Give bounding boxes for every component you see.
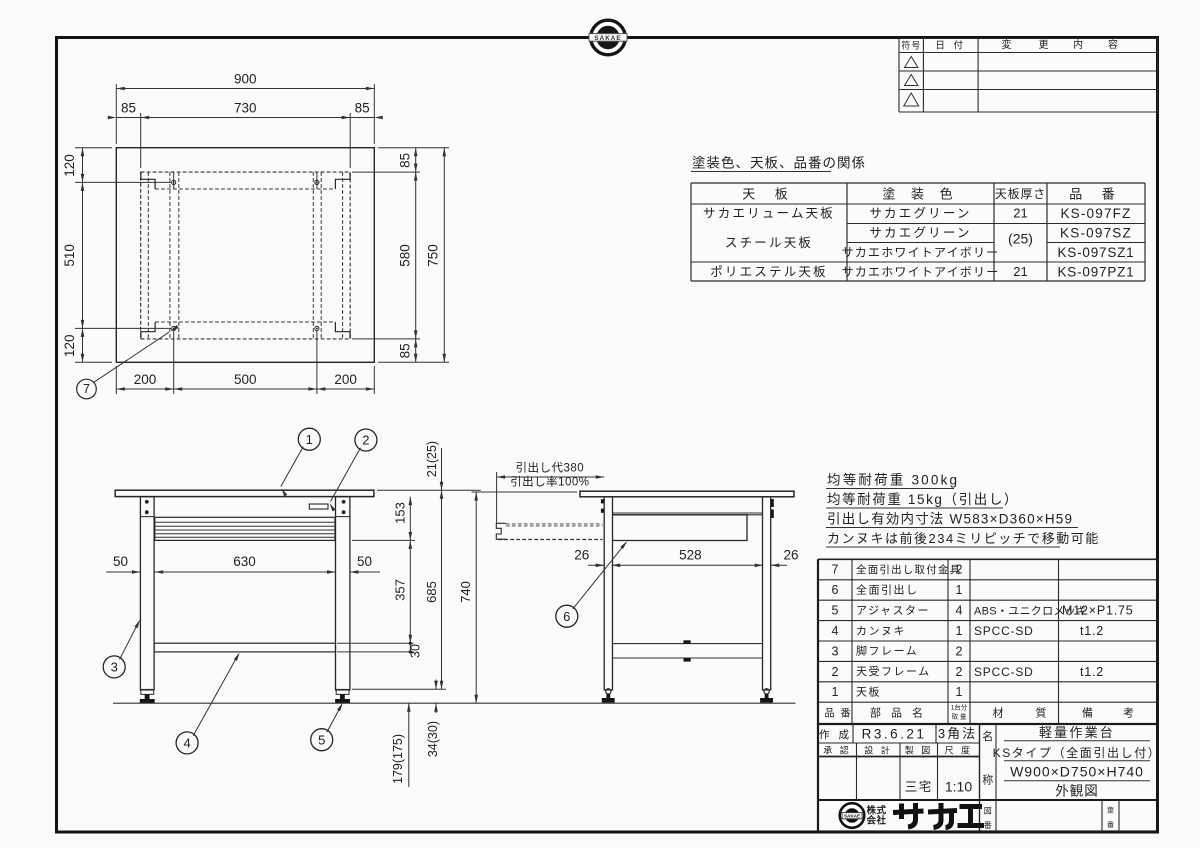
svg-text:名: 名 [912, 706, 923, 720]
svg-text:取 量: 取 量 [952, 713, 967, 721]
svg-text:2: 2 [956, 665, 963, 679]
svg-text:SPCC-SD: SPCC-SD [974, 624, 1034, 638]
svg-text:85: 85 [398, 153, 413, 168]
svg-text:脚フレーム: 脚フレーム [856, 644, 918, 658]
svg-text:番: 番 [984, 820, 992, 830]
svg-text:引出し有効内寸法 W583×D360×H59: 引出し有効内寸法 W583×D360×H59 [827, 512, 1073, 527]
svg-text:全面引出し取付金具: 全面引出し取付金具 [856, 563, 961, 576]
svg-text:会社: 会社 [866, 815, 886, 827]
svg-text:品: 品 [825, 708, 835, 720]
svg-text:容: 容 [1108, 38, 1118, 51]
svg-text:50: 50 [113, 554, 128, 569]
svg-text:2: 2 [956, 644, 963, 658]
svg-text:サカエホワイトアイボリー: サカエホワイトアイボリー [842, 265, 1000, 279]
svg-text:1台分: 1台分 [951, 703, 968, 712]
svg-text:名: 名 [982, 729, 993, 743]
svg-text:尺 度: 尺 度 [944, 745, 972, 756]
svg-text:21: 21 [1013, 264, 1027, 279]
svg-text:天受フレーム: 天受フレーム [856, 665, 931, 678]
svg-text:120: 120 [62, 335, 77, 358]
svg-text:26: 26 [574, 548, 589, 563]
svg-text:85: 85 [398, 343, 413, 358]
svg-text:番: 番 [841, 708, 851, 720]
svg-text:カンヌキは前後234ミリピッチで移動可能: カンヌキは前後234ミリピッチで移動可能 [827, 531, 1100, 546]
svg-text:200: 200 [334, 372, 357, 387]
svg-text:塗装色、天板、品番の関係: 塗装色、天板、品番の関係 [692, 155, 866, 171]
svg-text:サカエリューム天板: サカエリューム天板 [703, 207, 835, 221]
svg-text:(25): (25) [1008, 231, 1033, 247]
svg-text:630: 630 [233, 554, 256, 569]
svg-text:730: 730 [234, 101, 257, 116]
svg-text:510: 510 [62, 244, 77, 267]
svg-text:スチール天板: スチール天板 [725, 236, 813, 250]
svg-text:軽量作業台: 軽量作業台 [1039, 725, 1115, 740]
svg-text:120: 120 [62, 154, 77, 177]
svg-text:357: 357 [393, 579, 408, 601]
svg-text:500: 500 [234, 372, 257, 387]
svg-text:2: 2 [362, 433, 369, 448]
svg-text:サカエグリーン: サカエグリーン [869, 226, 971, 240]
svg-text:引出し率100%: 引出し率100% [510, 475, 589, 489]
svg-text:750: 750 [425, 244, 440, 267]
svg-text:1: 1 [832, 685, 839, 699]
svg-text:50: 50 [357, 554, 372, 569]
svg-text:図: 図 [984, 807, 992, 816]
svg-text:26: 26 [783, 548, 798, 563]
svg-text:21(25): 21(25) [425, 441, 439, 477]
svg-text:SAKAE: SAKAE [594, 35, 621, 42]
svg-text:承 認: 承 認 [823, 745, 851, 756]
svg-text:1:10: 1:10 [945, 779, 972, 795]
svg-text:製 図: 製 図 [905, 745, 933, 756]
svg-text:7: 7 [832, 563, 839, 577]
svg-text:天 板: 天 板 [742, 187, 796, 202]
svg-text:天板厚さ: 天板厚さ [995, 187, 1046, 201]
svg-text:t1.2: t1.2 [1080, 665, 1104, 679]
svg-text:t1.2: t1.2 [1080, 624, 1104, 638]
svg-text:6: 6 [563, 609, 570, 624]
svg-text:サカエホワイトアイボリー: サカエホワイトアイボリー [842, 246, 1000, 260]
svg-text:4: 4 [956, 604, 963, 618]
svg-text:4: 4 [832, 624, 839, 638]
svg-text:称: 称 [982, 773, 993, 787]
svg-text:85: 85 [121, 101, 136, 116]
svg-text:580: 580 [398, 244, 413, 267]
svg-text:符号: 符号 [901, 40, 921, 51]
svg-text:作 成: 作 成 [819, 729, 852, 741]
svg-text:ポリエステル天板: ポリエステル天板 [710, 265, 828, 279]
svg-text:1: 1 [306, 432, 313, 447]
svg-text:5: 5 [832, 604, 839, 618]
svg-text:5: 5 [318, 732, 325, 747]
svg-text:SAKAE: SAKAE [844, 814, 860, 819]
svg-text:KS-097SZ: KS-097SZ [1060, 226, 1132, 241]
svg-text:備: 備 [1082, 707, 1093, 720]
svg-text:部: 部 [870, 706, 881, 720]
svg-text:カンヌキ: カンヌキ [856, 624, 906, 637]
svg-text:品: 品 [891, 707, 902, 720]
svg-text:塗 装 色: 塗 装 色 [882, 187, 958, 202]
svg-text:三宅: 三宅 [905, 779, 933, 794]
svg-text:SPCC-SD: SPCC-SD [974, 665, 1034, 679]
svg-text:3角法: 3角法 [938, 726, 977, 741]
svg-text:34(30): 34(30) [426, 721, 440, 757]
svg-text:外観図: 外観図 [1055, 783, 1099, 799]
svg-text:更: 更 [1039, 39, 1049, 51]
svg-text:サカエグリーン: サカエグリーン [869, 207, 971, 221]
svg-text:900: 900 [234, 72, 257, 87]
svg-text:528: 528 [679, 548, 702, 563]
svg-text:685: 685 [424, 581, 439, 603]
svg-text:1: 1 [956, 624, 963, 638]
svg-text:葉: 葉 [1107, 806, 1114, 815]
svg-text:番: 番 [1107, 821, 1114, 829]
svg-text:179(175): 179(175) [391, 734, 405, 784]
svg-text:均等耐荷重 300kg: 均等耐荷重 300kg [827, 472, 959, 488]
svg-text:7: 7 [83, 382, 90, 396]
svg-text:3: 3 [111, 660, 118, 675]
svg-text:85: 85 [355, 101, 370, 116]
svg-text:KS-097SZ1: KS-097SZ1 [1058, 245, 1135, 260]
svg-text:全面引出し: 全面引出し [856, 583, 919, 597]
svg-text:KS-097PZ1: KS-097PZ1 [1058, 265, 1135, 280]
svg-text:均等耐荷重 15kg（引出し）: 均等耐荷重 15kg（引出し） [827, 491, 1019, 507]
svg-text:材: 材 [993, 706, 1004, 720]
svg-text:変: 変 [1002, 38, 1012, 51]
svg-text:設 計: 設 計 [864, 745, 892, 756]
svg-text:4: 4 [183, 736, 190, 751]
svg-text:M12×P1.75: M12×P1.75 [1062, 604, 1133, 618]
svg-text:3: 3 [832, 644, 839, 658]
svg-text:2: 2 [832, 665, 839, 679]
svg-text:日 付: 日 付 [935, 41, 966, 52]
svg-text:内: 内 [1073, 38, 1083, 51]
svg-text:品 番: 品 番 [1069, 187, 1123, 202]
svg-text:30: 30 [409, 644, 423, 658]
svg-text:質: 質 [1036, 706, 1047, 720]
svg-text:考: 考 [1123, 707, 1134, 720]
svg-text:21: 21 [1013, 206, 1027, 221]
svg-text:KS-097FZ: KS-097FZ [1060, 206, 1131, 221]
svg-text:153: 153 [393, 502, 408, 524]
svg-text:アジャスター: アジャスター [856, 604, 930, 617]
svg-text:6: 6 [832, 583, 839, 597]
svg-text:1: 1 [956, 583, 963, 597]
svg-text:2: 2 [956, 563, 963, 577]
svg-text:740: 740 [458, 581, 473, 603]
svg-text:200: 200 [134, 372, 157, 387]
svg-text:引出し代380: 引出し代380 [515, 461, 584, 475]
svg-text:R3.6.21: R3.6.21 [862, 727, 927, 742]
svg-text:KSタイプ（全面引出し付）: KSタイプ（全面引出し付） [993, 745, 1162, 760]
svg-text:W900×D750×H740: W900×D750×H740 [1010, 764, 1144, 780]
svg-text:1: 1 [956, 685, 963, 699]
svg-text:天板: 天板 [856, 685, 881, 699]
